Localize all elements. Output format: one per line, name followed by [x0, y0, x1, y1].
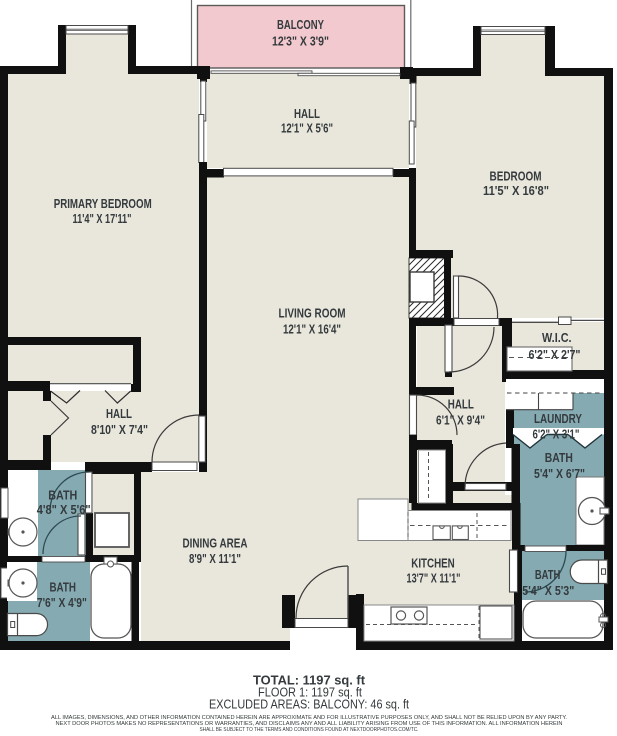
svg-text:KITCHEN: KITCHEN [411, 556, 455, 571]
svg-text:BATH: BATH [49, 580, 76, 595]
svg-text:6'1" X 9'4": 6'1" X 9'4" [436, 414, 485, 428]
svg-text:W.I.C.: W.I.C. [542, 330, 572, 345]
svg-text:11'5" X 16'8": 11'5" X 16'8" [483, 184, 549, 198]
svg-text:4'8" X 5'6": 4'8" X 5'6" [37, 503, 91, 517]
svg-text:8'9" X 11'1": 8'9" X 11'1" [189, 552, 241, 566]
svg-text:6'2" X 2'7": 6'2" X 2'7" [529, 348, 581, 362]
svg-text:12'1" X 5'6": 12'1" X 5'6" [281, 122, 333, 136]
svg-text:12'1" X 16'4": 12'1" X 16'4" [283, 323, 341, 337]
svg-text:HALL: HALL [106, 406, 132, 421]
svg-text:5'4" X 5'3": 5'4" X 5'3" [522, 584, 574, 598]
svg-text:BATH: BATH [535, 567, 561, 582]
svg-text:LAUNDRY: LAUNDRY [534, 411, 582, 426]
svg-text:HALL: HALL [294, 106, 320, 121]
svg-text:DINING AREA: DINING AREA [183, 536, 248, 551]
svg-text:8'10" X 7'4": 8'10" X 7'4" [91, 423, 148, 437]
svg-text:13'7" X 11'1": 13'7" X 11'1" [407, 572, 461, 586]
svg-text:BATH: BATH [48, 488, 77, 503]
svg-text:12'3" X 3'9": 12'3" X 3'9" [272, 35, 329, 49]
svg-text:SHALL BE SUBJECT TO THE TERMS: SHALL BE SUBJECT TO THE TERMS AND CONDIT… [200, 727, 419, 733]
svg-text:6'2" X 3'1": 6'2" X 3'1" [533, 428, 580, 442]
svg-text:LIVING ROOM: LIVING ROOM [279, 306, 346, 321]
svg-text:BATH: BATH [545, 450, 573, 465]
svg-text:BALCONY: BALCONY [277, 17, 324, 32]
svg-text:11'4" X 17'11": 11'4" X 17'11" [73, 212, 132, 226]
svg-text:HALL: HALL [448, 397, 474, 412]
svg-text:5'4" X 6'7": 5'4" X 6'7" [534, 467, 585, 481]
svg-text:BEDROOM: BEDROOM [490, 169, 542, 184]
svg-text:EXCLUDED AREAS: BALCONY: 46 sq: EXCLUDED AREAS: BALCONY: 46 sq. ft [209, 698, 409, 712]
svg-text:7'6" X 4'9": 7'6" X 4'9" [37, 596, 87, 610]
svg-text:PRIMARY BEDROOM: PRIMARY BEDROOM [54, 196, 152, 211]
